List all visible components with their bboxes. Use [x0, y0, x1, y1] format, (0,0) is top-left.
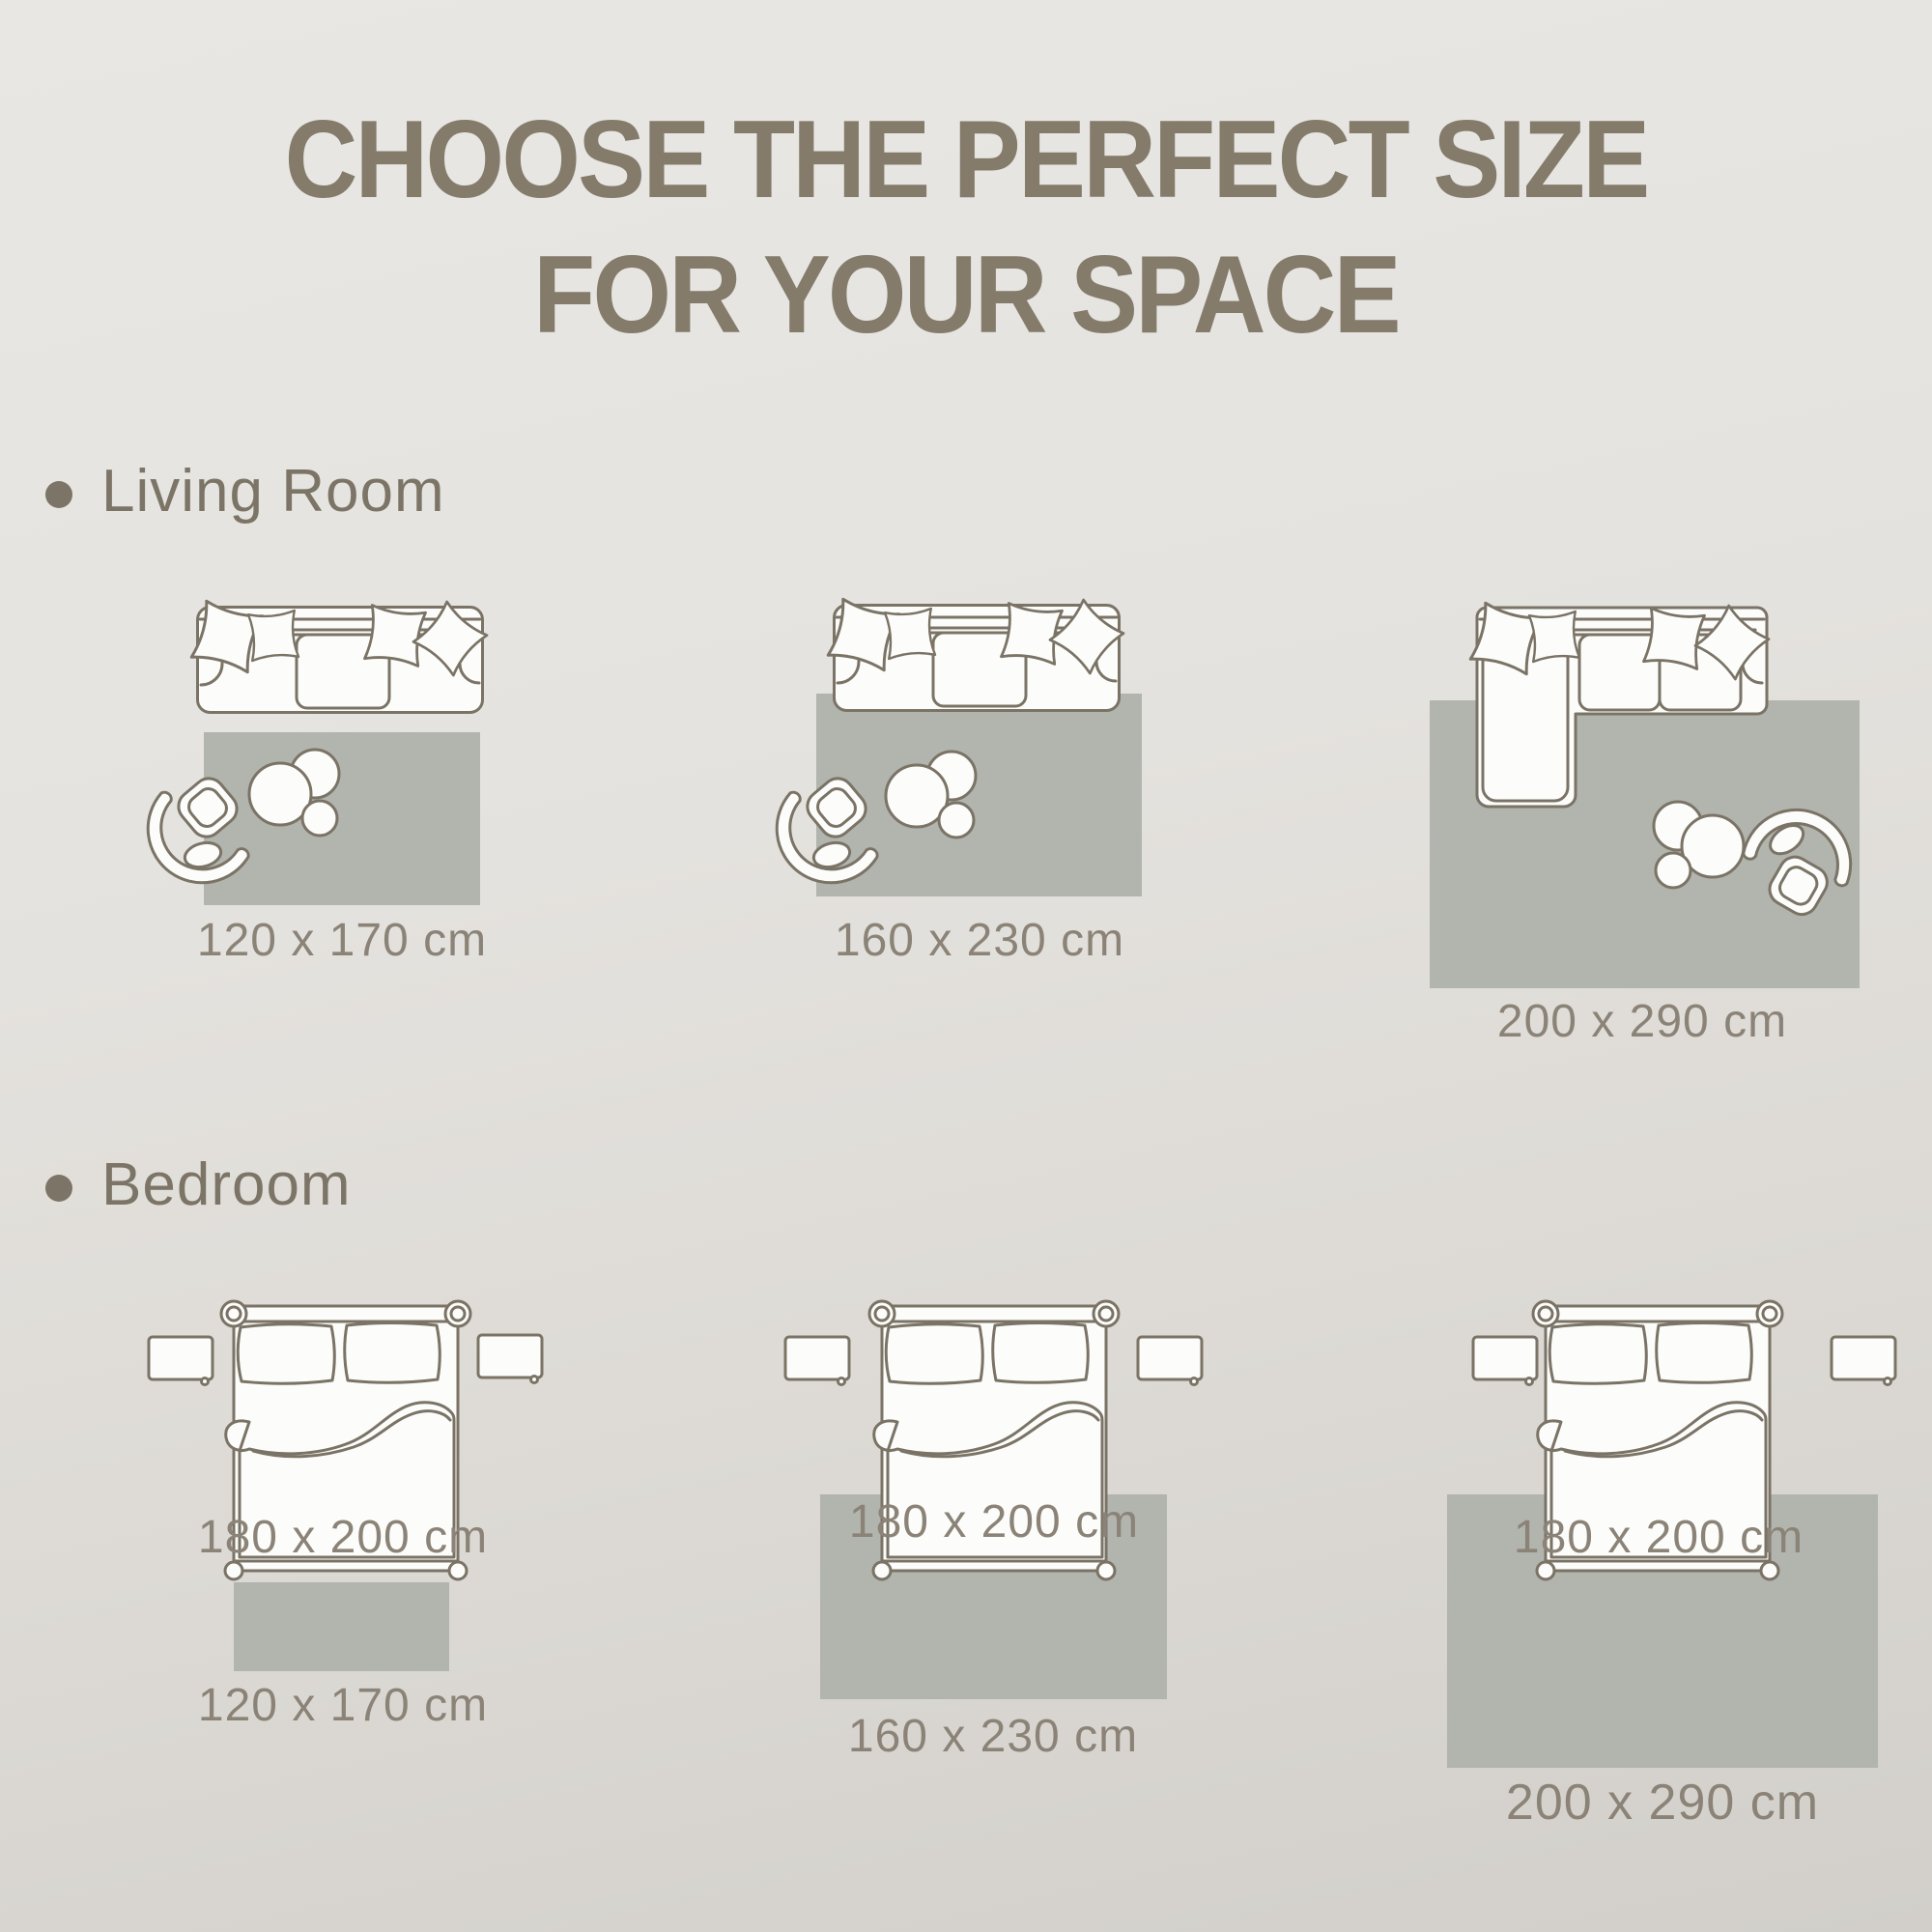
living-room-diagram-120x170 — [135, 580, 522, 918]
rug-120x170 — [204, 732, 480, 905]
section-bedroom-label: Bedroom — [101, 1155, 352, 1215]
bed-size-label-1: 180 x 200 cm — [111, 1513, 575, 1564]
rug-size-label-living-3: 200 x 290 cm — [1449, 997, 1835, 1048]
rug-size-label-bedroom-3: 200 x 290 cm — [1431, 1776, 1894, 1831]
rug-size-guide-infographic: CHOOSE THE PERFECT SIZE FOR YOUR SPACE L… — [0, 0, 1932, 1932]
bullet-icon — [45, 1175, 72, 1202]
rug-120x170 — [234, 1582, 449, 1671]
nightstand-icon — [785, 1337, 849, 1385]
section-bedroom: Bedroom — [45, 1155, 352, 1215]
bullet-icon — [45, 481, 72, 508]
page-title: CHOOSE THE PERFECT SIZE FOR YOUR SPACE — [0, 93, 1932, 363]
section-living-room-label: Living Room — [101, 462, 445, 522]
page-title-line2: FOR YOUR SPACE — [77, 228, 1855, 363]
rug-size-label-living-1: 120 x 170 cm — [149, 916, 535, 967]
nightstand-icon — [149, 1337, 213, 1385]
section-living-room: Living Room — [45, 462, 445, 522]
living-room-diagram-200x290 — [1401, 570, 1884, 1014]
page-title-line1: CHOOSE THE PERFECT SIZE — [77, 93, 1855, 228]
rug-size-label-bedroom-1: 120 x 170 cm — [111, 1681, 575, 1732]
bedroom-diagram-120x170 — [116, 1285, 580, 1681]
bed-size-label-3: 180 x 200 cm — [1427, 1513, 1890, 1564]
rug-size-label-bedroom-2: 160 x 230 cm — [761, 1712, 1225, 1763]
nightstand-icon — [1473, 1337, 1537, 1385]
rug-size-label-living-2: 160 x 230 cm — [786, 916, 1173, 967]
living-room-diagram-160x230 — [753, 580, 1151, 908]
nightstand-icon — [1832, 1337, 1895, 1385]
nightstand-icon — [1138, 1337, 1202, 1385]
nightstand-icon — [478, 1335, 542, 1383]
sofa-icon — [191, 601, 487, 712]
bed-size-label-2: 180 x 200 cm — [762, 1497, 1226, 1548]
sofa-icon — [828, 599, 1123, 710]
